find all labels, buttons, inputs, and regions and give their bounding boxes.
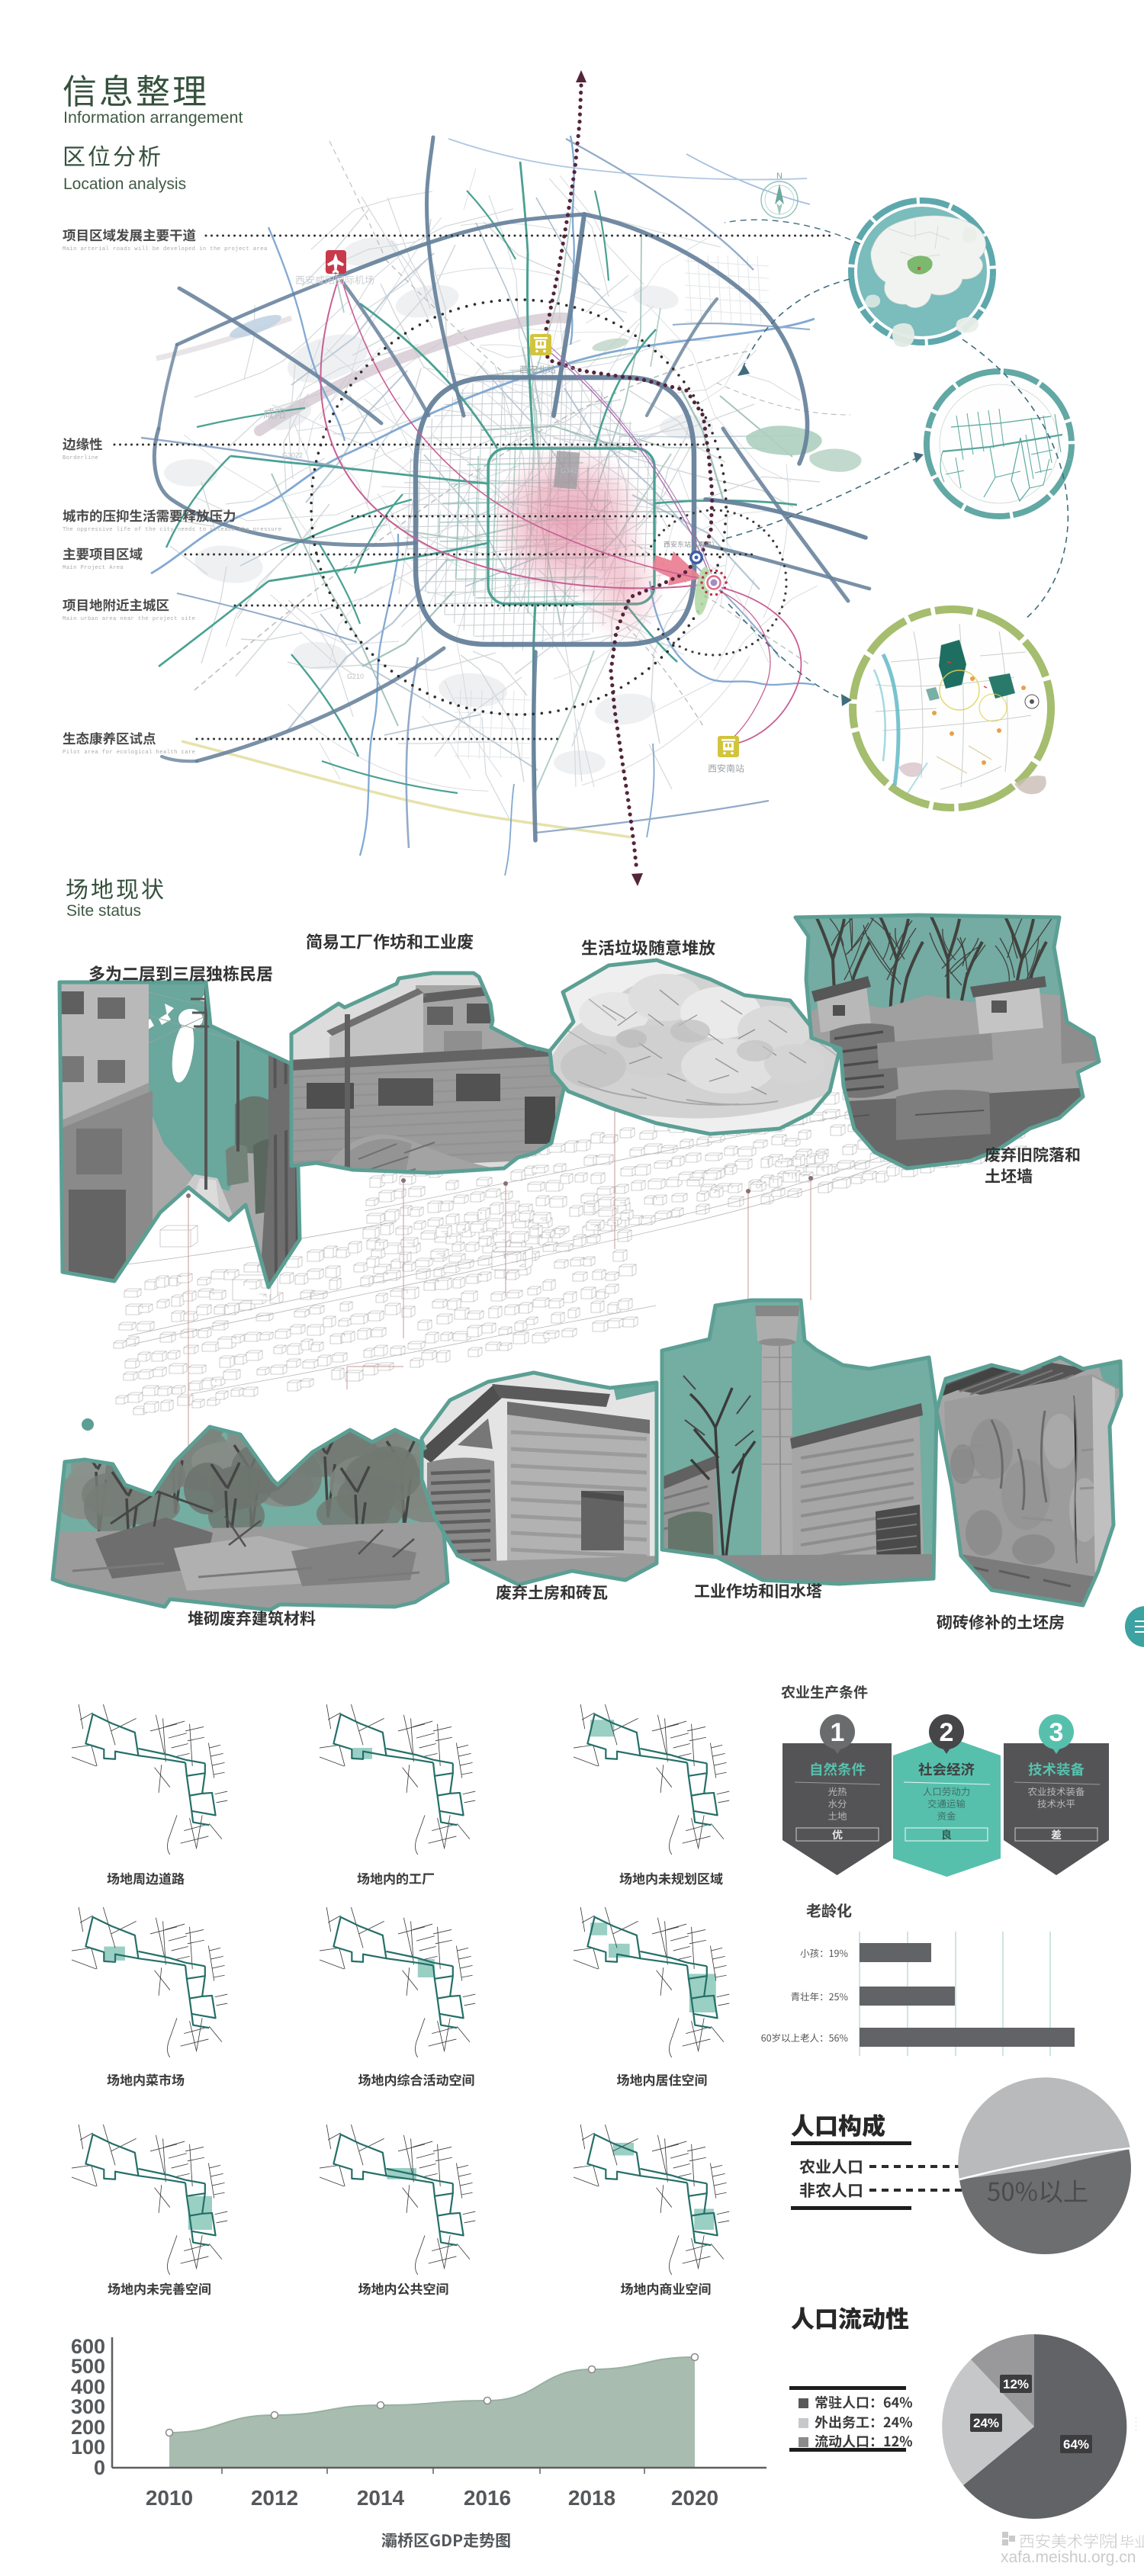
svg-text:2: 2: [940, 1718, 954, 1747]
svg-text:G342: G342: [561, 467, 577, 474]
svg-text:300: 300: [71, 2395, 105, 2418]
svg-text:0: 0: [94, 2456, 105, 2479]
svg-text:Main urban area near the proje: Main urban area near the project site: [63, 616, 195, 622]
svg-text:Information arrangement: Information arrangement: [63, 108, 243, 127]
svg-text:2020: 2020: [671, 2486, 718, 2510]
svg-text:3: 3: [1049, 1718, 1064, 1747]
svg-text:Main Project Area: Main Project Area: [63, 565, 124, 571]
svg-text:Main arterial roads will be de: Main arterial roads will be developed in…: [63, 246, 268, 252]
svg-text:24%: 24%: [973, 2416, 999, 2430]
svg-text:2012: 2012: [251, 2486, 298, 2510]
svg-text:Borderline: Borderline: [63, 455, 98, 461]
svg-text:64%: 64%: [1063, 2437, 1089, 2452]
svg-text:2016: 2016: [464, 2486, 511, 2510]
svg-text:1: 1: [831, 1718, 845, 1747]
svg-text:2010: 2010: [146, 2486, 193, 2510]
svg-text:Pilot area for ecological heal: Pilot area for ecological health care: [63, 750, 195, 756]
svg-text:. . . .: . . . .: [1134, 2417, 1142, 2431]
svg-text:N: N: [776, 172, 782, 181]
svg-text:Location analysis: Location analysis: [63, 175, 186, 193]
svg-text:12%: 12%: [1003, 2377, 1029, 2391]
svg-text:The oppressive life of the cit: The oppressive life of the city needs to…: [63, 527, 282, 533]
svg-text:2018: 2018: [568, 2486, 615, 2510]
svg-text:xafa.meishu.org.cn: xafa.meishu.org.cn: [1001, 2549, 1136, 2566]
svg-text:500: 500: [71, 2355, 105, 2378]
svg-text:100: 100: [71, 2436, 105, 2459]
svg-text:2014: 2014: [357, 2486, 405, 2510]
